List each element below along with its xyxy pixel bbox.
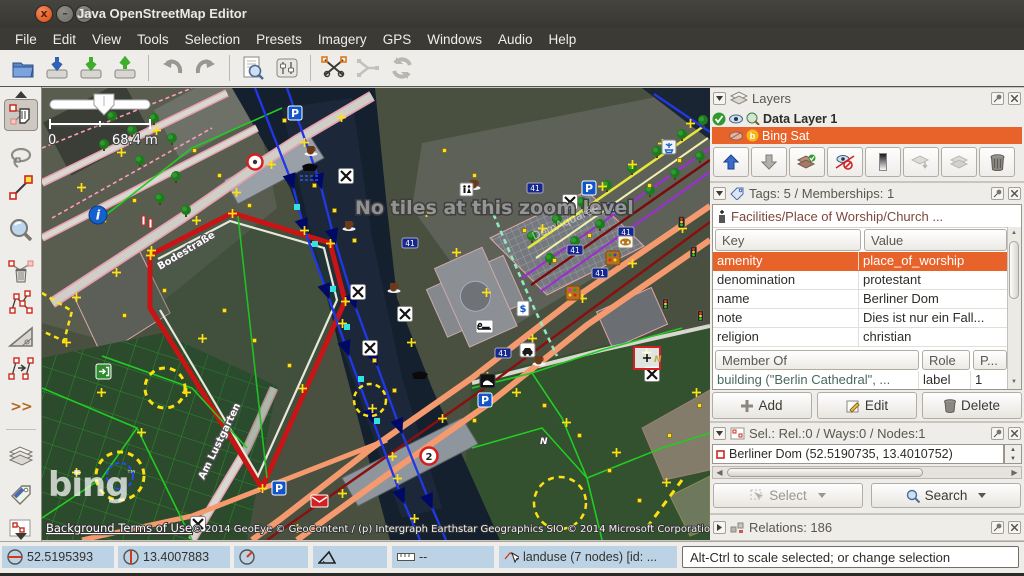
data-layer-icon [746, 112, 760, 125]
visibility-eye-icon[interactable] [729, 131, 743, 141]
ruler-icon [397, 552, 415, 562]
layer-name: Bing Sat [762, 129, 809, 143]
selection-hscrollbar[interactable]: ◀ ▶ [712, 466, 1022, 479]
svg-text:P: P [291, 107, 299, 120]
membership-row[interactable]: building ("Berlin Cathedral", ... label … [713, 371, 1021, 389]
svg-text:b: b [750, 131, 756, 141]
svg-text:41: 41 [498, 349, 508, 358]
lasso-icon [8, 145, 34, 171]
combine-way-icon [355, 55, 381, 81]
bollard-icon [149, 219, 152, 228]
tags-table: Facilities/Place of Worship/Church ... K… [712, 204, 1022, 390]
trash-icon [990, 154, 1005, 171]
undo-button[interactable] [155, 52, 189, 84]
pin-icon [993, 523, 1002, 532]
latitude-icon [7, 549, 23, 565]
house-number-badge: 41 [592, 268, 608, 278]
menu-edit[interactable]: Edit [45, 31, 84, 48]
preset-search-button[interactable] [236, 52, 270, 84]
parallel-way-icon [8, 356, 34, 382]
menu-view[interactable]: View [84, 31, 129, 48]
split-way-button[interactable] [317, 52, 351, 84]
scrollbar-up-arrow[interactable]: ▲ [1009, 228, 1019, 239]
open-button[interactable] [6, 52, 40, 84]
traffic-light-icon [691, 247, 697, 258]
select-cursor-icon [750, 489, 764, 502]
menu-file[interactable]: File [7, 31, 45, 48]
menu-help[interactable]: Help [541, 31, 585, 48]
svg-text:41: 41 [405, 239, 415, 248]
house-number-badge: 41 [495, 348, 511, 358]
preset-link[interactable]: Facilities/Place of Worship/Church ... [713, 205, 1021, 228]
layers-icon [7, 442, 35, 468]
layer-name: Data Layer 1 [763, 112, 837, 126]
redo-button[interactable] [189, 52, 223, 84]
extrude-tool[interactable] [4, 321, 38, 353]
pin-icon [993, 94, 1002, 103]
menu-selection[interactable]: Selection [177, 31, 249, 48]
position-header[interactable]: P... [973, 350, 1007, 370]
layers-stack-icon [949, 154, 969, 170]
heading-field [234, 546, 308, 568]
house-number-badge: 41 [567, 245, 583, 255]
layer-buttons [713, 147, 1015, 177]
scroll-right-arrow[interactable]: ▶ [1008, 467, 1021, 478]
merge-layer-button[interactable] [789, 147, 825, 177]
layers-panel-icon [730, 91, 748, 105]
arrow-up-icon [723, 154, 739, 170]
distance-field: -- [392, 546, 494, 568]
angle-icon [318, 550, 336, 564]
josm-window: x – □ Java OpenStreetMap Editor File Edi… [0, 0, 1024, 576]
tags-scrollbar[interactable]: ▲ ▼ [1007, 227, 1021, 389]
menu-gps[interactable]: GPS [375, 31, 420, 48]
info-icon: i [89, 206, 107, 224]
delete-layer-button[interactable] [979, 147, 1015, 177]
combine-way-button[interactable] [351, 52, 385, 84]
tag-row[interactable]: religionchristian [713, 328, 1021, 347]
copyright-text: © 2014 GeoEye © GeoContent / (p) Intergr… [192, 524, 710, 535]
shoe-shop-icon [480, 374, 495, 388]
upload-icon [112, 55, 138, 81]
restaurant-icon [398, 307, 413, 322]
shop-icon [606, 251, 620, 265]
selected-node-marker[interactable]: N [634, 347, 662, 369]
plus-icon [741, 400, 753, 412]
open-folder-icon [10, 55, 36, 81]
eye-slash-icon [835, 154, 855, 170]
longitude-field: 13.4007883 [118, 546, 230, 568]
house-number-badge: 41 [402, 238, 418, 248]
titlebar: x – □ Java OpenStreetMap Editor [0, 0, 1024, 29]
node-marker-icon [716, 450, 725, 459]
tag-row[interactable]: noteDies ist nur ein Fall... [713, 309, 1021, 328]
atm-icon: $ [517, 301, 529, 316]
exit-icon [96, 364, 111, 379]
improve-accuracy-tool[interactable] [4, 287, 38, 319]
traffic-light-icon [679, 217, 685, 228]
tags-panel-title: Tags: 5 / Memberships: 1 [749, 186, 894, 201]
terms-of-use-link[interactable]: Background Terms of Use [46, 521, 192, 535]
tag-row[interactable]: nameBerliner Dom [713, 290, 1021, 309]
svg-text:$: $ [520, 304, 527, 315]
tag-actions: Add Edit Delete [712, 392, 1022, 419]
refresh-icon [389, 55, 415, 81]
menu-windows[interactable]: Windows [419, 31, 490, 48]
more-tools-button[interactable]: >> [4, 391, 38, 423]
help-hint-field: Alt-Ctrl to scale selected; or change se… [682, 546, 1019, 568]
arrow-down-icon [15, 533, 27, 540]
hover-object-field: landuse (7 nodes) [id: ... [499, 546, 677, 568]
bing-tm: ™ [126, 468, 137, 481]
edit-tag-button[interactable]: Edit [817, 392, 917, 419]
close-icon [1011, 430, 1018, 437]
hotel-icon [476, 320, 493, 333]
undo-icon [159, 55, 185, 81]
pencil-icon [846, 399, 860, 413]
triangle-down-icon [716, 431, 723, 436]
delete-tool[interactable] [4, 255, 38, 287]
sticky-selection-button[interactable] [991, 427, 1004, 440]
svg-text:41: 41 [595, 269, 605, 278]
hscrollbar-thumb[interactable] [727, 468, 923, 477]
scissors-icon [321, 55, 347, 81]
scale-distance-label: 68.4 m [112, 133, 158, 148]
active-check-icon [712, 112, 726, 126]
tags-panel-icon [730, 187, 745, 200]
scroll-left-arrow[interactable]: ◀ [713, 467, 726, 478]
duplicate-layer-button[interactable] [903, 147, 939, 177]
svg-text:N: N [654, 355, 662, 365]
sticky-tags-button[interactable] [991, 187, 1004, 200]
tag-icon [8, 482, 34, 508]
select-move-icon [8, 102, 34, 128]
restroom-icon [460, 183, 473, 196]
bing-layer-icon: b [746, 129, 759, 142]
taxi-icon [520, 343, 535, 357]
preferences-icon [274, 55, 300, 81]
toggle-visibility-button[interactable] [827, 147, 863, 177]
tags-panel-toggle[interactable] [4, 479, 38, 511]
svg-text:P: P [481, 394, 489, 407]
hover-cursor-icon [504, 550, 519, 565]
parking-icon: P [272, 481, 286, 495]
minimize-window-button[interactable]: – [56, 5, 74, 23]
close-layers-button[interactable] [1008, 92, 1021, 105]
layers-panel-title: Layers [752, 91, 791, 106]
parking-icon: P [288, 106, 302, 120]
upload-button[interactable] [108, 52, 142, 84]
visibility-eye-icon[interactable] [729, 114, 743, 124]
svg-text:41: 41 [570, 246, 580, 255]
tag-row[interactable]: denominationprotestant [713, 271, 1021, 290]
svg-text:P: P [585, 182, 593, 195]
longitude-icon [123, 549, 139, 565]
key-column-header[interactable]: Key [715, 229, 861, 251]
opacity-gradient-icon [879, 153, 887, 171]
preferences-button[interactable] [270, 52, 304, 84]
layer-row-data[interactable]: Data Layer 1 [712, 110, 1022, 127]
collapse-selection-button[interactable] [713, 427, 726, 440]
selection-panel: Sel.: Rel.:0 / Ways:0 / Nodes:1 Berliner… [710, 423, 1024, 513]
latitude-field: 52.5195393 [2, 546, 114, 568]
edit-toolbar: >> [0, 87, 42, 543]
layer-down-icon [911, 154, 931, 170]
traffic-light-icon [663, 299, 669, 310]
restaurant-icon [363, 341, 378, 356]
zoom-tool[interactable] [4, 215, 38, 247]
close-relations-button[interactable] [1008, 521, 1021, 534]
layers-panel-toggle[interactable] [4, 439, 38, 471]
scroll-up-button[interactable] [4, 89, 38, 99]
landmark-label: N [540, 437, 548, 447]
tag-row[interactable]: amenityplace_of_worship [713, 252, 1021, 271]
delete-tag-button[interactable]: Delete [922, 392, 1022, 419]
search-document-icon [240, 55, 266, 81]
collapse-tags-button[interactable] [713, 187, 726, 200]
selection-list-item[interactable]: Berliner Dom (52.5190735, 13.4010752) [712, 444, 1004, 464]
delete-nodes-icon [8, 258, 34, 284]
shop-icon [566, 286, 580, 300]
layer-move-up-button[interactable] [713, 147, 749, 177]
bing-logo: bing [48, 465, 129, 505]
statusbar: 52.5195393 13.4007883 -- landuse (7 node… [0, 541, 1024, 576]
sticky-relations-button[interactable] [991, 521, 1004, 534]
selection-actions: Select Search [713, 483, 1021, 508]
speed-limit-sign: 2 [421, 448, 438, 465]
triangle-down-icon [716, 96, 723, 101]
value-column-header[interactable]: Value [864, 229, 1007, 251]
layers-panel: Layers Data Layer 1 b Bing Sat [710, 88, 1024, 181]
search-button[interactable]: Search [871, 483, 1021, 508]
close-window-button[interactable]: x [35, 5, 53, 23]
tags-panel: Tags: 5 / Memberships: 1 Facilities/Plac… [710, 183, 1024, 421]
parking-icon: P [582, 181, 596, 195]
scrollbar-thumb[interactable] [1009, 241, 1019, 299]
extrude-icon [8, 324, 34, 350]
menu-presets[interactable]: Presets [248, 31, 310, 48]
svg-text:2: 2 [426, 452, 433, 463]
sticky-layers-button[interactable] [991, 92, 1004, 105]
menu-audio[interactable]: Audio [490, 31, 541, 48]
svg-text:P: P [275, 482, 283, 495]
bakery-icon [618, 236, 633, 248]
pin-icon [993, 189, 1002, 198]
angle-field [313, 546, 387, 568]
main-toolbar [0, 50, 1024, 87]
bollard-icon [142, 216, 145, 225]
right-panel-column: Layers Data Layer 1 b Bing Sat [710, 88, 1024, 540]
mail-icon [311, 495, 328, 507]
selection-spinner[interactable]: ▲▼ [1004, 444, 1022, 464]
traffic-light-icon [698, 311, 704, 322]
no-entry-sign [248, 155, 263, 170]
update-data-button[interactable] [385, 52, 419, 84]
arrow-down-icon [761, 154, 777, 170]
svg-text:i: i [96, 209, 101, 224]
scrollbar-down-arrow[interactable]: ▼ [1009, 377, 1019, 388]
selection-panel-icon [730, 427, 745, 440]
close-icon [1011, 95, 1018, 102]
merge-layers-icon [797, 154, 817, 171]
menu-imagery[interactable]: Imagery [310, 31, 375, 48]
collapse-layers-button[interactable] [713, 92, 726, 105]
heading-icon [239, 549, 255, 565]
relations-panel: Relations: 186 [710, 515, 1024, 540]
download-view-button[interactable] [40, 52, 74, 84]
trash-icon [944, 399, 956, 413]
menubar: File Edit View Tools Selection Presets I… [0, 28, 1024, 50]
close-icon [1011, 190, 1018, 197]
expand-relations-button[interactable] [713, 521, 726, 534]
church-icon [717, 210, 727, 223]
scroll-down-button[interactable] [4, 531, 38, 541]
parking-icon: P [478, 393, 492, 407]
map-view[interactable]: P P P P 41 41 41 41 41 41 41 [42, 88, 710, 540]
download-button[interactable] [74, 52, 108, 84]
arrow-up-icon [15, 91, 27, 98]
scale-zero-label: 0 [48, 133, 56, 148]
select-tool[interactable] [4, 99, 38, 131]
restaurant-icon [339, 169, 354, 184]
relations-panel-title: Relations: 186 [749, 520, 832, 535]
lasso-tool[interactable] [4, 142, 38, 174]
member-of-header[interactable]: Member Of [715, 350, 919, 370]
draw-nodes-tool[interactable] [4, 172, 38, 204]
svg-text:41: 41 [530, 184, 540, 193]
layer-row-bing[interactable]: b Bing Sat [712, 127, 1022, 144]
download-view-icon [44, 55, 70, 81]
layer-move-down-button[interactable] [751, 147, 787, 177]
magnifier-icon [8, 218, 34, 244]
menu-tools[interactable]: Tools [129, 31, 177, 48]
redo-icon [193, 55, 219, 81]
layer-opacity-button[interactable] [865, 147, 901, 177]
triangle-right-icon [717, 524, 722, 531]
improve-way-icon [8, 290, 34, 316]
house-number-badge: 41 [527, 183, 543, 193]
pin-icon [993, 429, 1002, 438]
close-icon [1011, 524, 1018, 531]
add-tag-button[interactable]: Add [712, 392, 812, 419]
window-title: Java OpenStreetMap Editor [77, 6, 247, 21]
download-icon [78, 55, 104, 81]
parallel-way-tool[interactable] [4, 353, 38, 385]
search-icon [906, 489, 920, 503]
fountain-icon [662, 140, 676, 154]
close-selection-button[interactable] [1008, 427, 1021, 440]
role-header[interactable]: Role [922, 350, 970, 370]
relations-panel-icon [730, 521, 745, 534]
select-button[interactable]: Select [713, 483, 863, 508]
triangle-down-icon [716, 191, 723, 196]
restaurant-icon [351, 285, 366, 300]
selection-panel-title: Sel.: Rel.:0 / Ways:0 / Nodes:1 [749, 426, 926, 441]
close-tags-button[interactable] [1008, 187, 1021, 200]
layer-stack-button[interactable] [941, 147, 977, 177]
draw-nodes-icon [8, 175, 34, 201]
